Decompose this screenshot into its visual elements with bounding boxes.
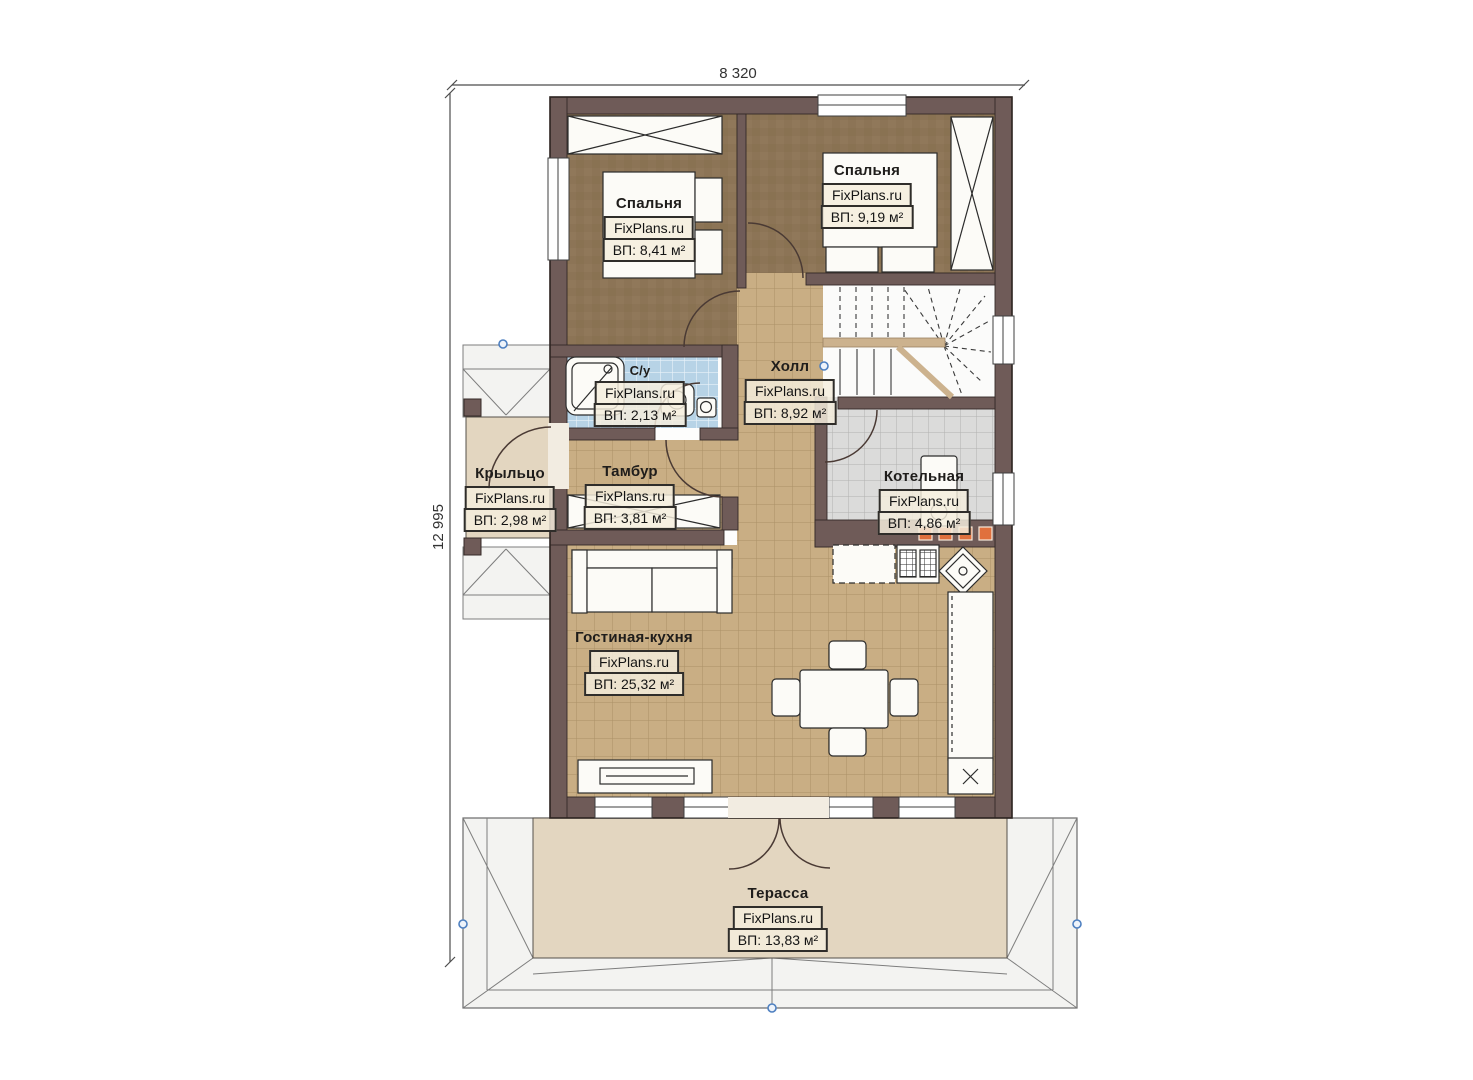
shoe-cabinet xyxy=(568,495,720,528)
front-door-opening xyxy=(548,423,569,489)
toilet xyxy=(697,398,716,417)
wardrobe xyxy=(568,116,722,154)
floorplan-drawing: 8 320 12 995 xyxy=(0,0,1473,1080)
floor-hall xyxy=(737,283,823,397)
terrace-door-opening xyxy=(728,797,829,818)
dimension-height-label: 12 995 xyxy=(430,504,447,550)
closet xyxy=(951,117,993,270)
porch-floor xyxy=(466,417,550,538)
floorplan-page: 8 320 12 995 xyxy=(0,0,1473,1080)
bathtub xyxy=(566,357,624,415)
floor-boiler xyxy=(827,409,995,520)
tv-stand xyxy=(578,760,712,793)
sofa xyxy=(572,550,732,613)
dimension-width-label: 8 320 xyxy=(719,65,757,82)
porch xyxy=(463,345,550,619)
boiler-unit xyxy=(921,456,957,526)
terrace-floor xyxy=(533,818,1007,958)
